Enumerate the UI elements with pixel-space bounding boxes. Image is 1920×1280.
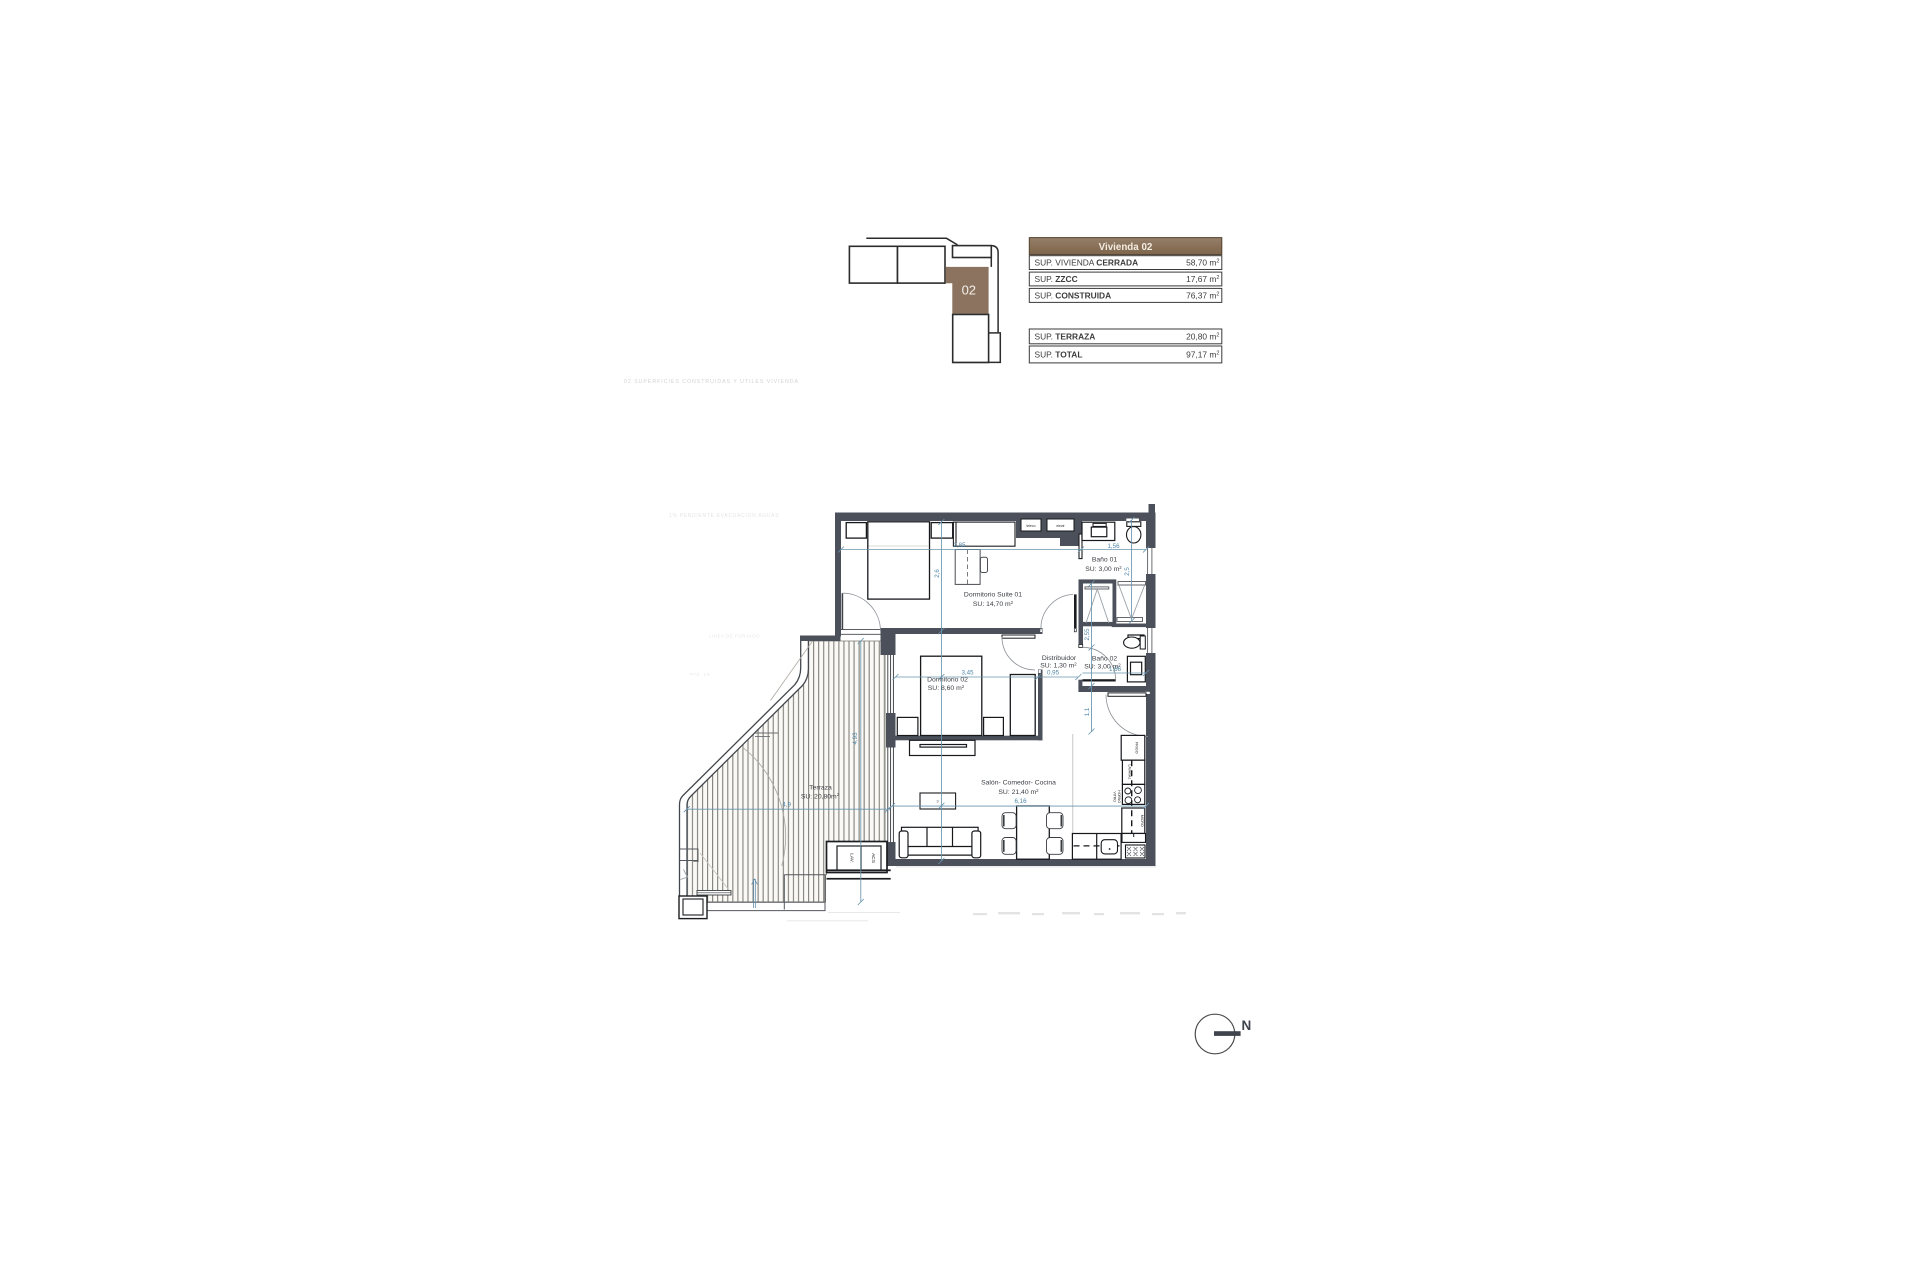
svg-text:4,93: 4,93 [852, 732, 859, 745]
svg-text:3,45: 3,45 [961, 669, 974, 676]
svg-text:PTE. 1%: PTE. 1% [690, 672, 711, 677]
svg-text:17,67 m2: 17,67 m2 [1186, 274, 1219, 284]
svg-text:teleco: teleco [1026, 524, 1035, 528]
svg-text:SU: 1,30 m2: SU: 1,30 m2 [1040, 661, 1077, 669]
svg-text:FRIGO: FRIGO [1135, 742, 1139, 754]
svg-text:6,16: 6,16 [1014, 798, 1027, 805]
svg-text:ACS: ACS [870, 853, 876, 863]
svg-text:Baño 02: Baño 02 [1092, 655, 1118, 662]
svg-text:1,56: 1,56 [1107, 543, 1120, 550]
svg-text:2,5: 2,5 [1124, 567, 1131, 576]
svg-text:Distribuidor: Distribuidor [1042, 655, 1077, 662]
svg-text:4,9: 4,9 [782, 802, 791, 809]
svg-text:SUP. ZZCC: SUP. ZZCC [1035, 274, 1078, 284]
svg-text:Dormitorio Suite 01: Dormitorio Suite 01 [964, 592, 1022, 599]
svg-text:N: N [1242, 1018, 1252, 1033]
svg-text:SUP. CONSTRUIDA: SUP. CONSTRUIDA [1035, 290, 1112, 300]
svg-text:Terraza: Terraza [809, 784, 832, 791]
svg-text:SUP. VIVIENDA CERRADA: SUP. VIVIENDA CERRADA [1035, 258, 1139, 268]
svg-text:2,6: 2,6 [934, 569, 941, 578]
svg-text:SUP. TOTAL: SUP. TOTAL [1035, 350, 1083, 360]
svg-text:Baño 01: Baño 01 [1092, 557, 1118, 564]
svg-text:HORNO: HORNO [1117, 790, 1121, 803]
svg-text:SU: 20,80m2: SU: 20,80m2 [801, 792, 840, 800]
svg-text:97,17 m2: 97,17 m2 [1186, 350, 1219, 360]
svg-text:Dormitorio 02: Dormitorio 02 [927, 676, 968, 683]
svg-text:Salón- Comedor- Cocina: Salón- Comedor- Cocina [981, 780, 1056, 787]
svg-text:02: 02 [962, 283, 976, 298]
svg-text:2,55: 2,55 [1084, 628, 1091, 641]
svg-text:SUP. TERRAZA: SUP. TERRAZA [1035, 332, 1096, 342]
svg-text:58,70 m2: 58,70 m2 [1186, 258, 1219, 268]
svg-text:Vivienda 02: Vivienda 02 [1099, 242, 1153, 253]
svg-text:02 SUPERFICIES CONSTRUIDAS Y: 02 SUPERFICIES CONSTRUIDAS Y UTILES VIVI… [624, 379, 799, 385]
svg-text:SU: 3,00 m2: SU: 3,00 m2 [1084, 662, 1121, 670]
svg-text:20,80 m2: 20,80 m2 [1186, 332, 1219, 342]
svg-text:LAV.: LAV. [849, 853, 855, 863]
svg-text:1% PENDIENTE EVACUACION AGUAS: 1% PENDIENTE EVACUACION AGUAS [669, 513, 779, 519]
svg-text:3,85: 3,85 [953, 542, 966, 549]
svg-text:0,95: 0,95 [1047, 670, 1060, 677]
svg-text:electr: electr [1056, 524, 1065, 528]
svg-text:1,1: 1,1 [1084, 707, 1091, 716]
svg-text:SU: 14,70 m2: SU: 14,70 m2 [973, 600, 1014, 608]
svg-text:MICRO: MICRO [1140, 815, 1144, 827]
svg-text:SU: 21,40 m2: SU: 21,40 m2 [998, 788, 1039, 796]
svg-text:LINEA DE FORJADO: LINEA DE FORJADO [709, 634, 760, 639]
svg-text:SU: 8,60 m2: SU: 8,60 m2 [928, 684, 965, 692]
svg-text:SU: 3,00 m2: SU: 3,00 m2 [1085, 565, 1122, 573]
svg-text:76,37 m2: 76,37 m2 [1186, 290, 1219, 300]
svg-text:VITRO: VITRO [1113, 792, 1117, 803]
